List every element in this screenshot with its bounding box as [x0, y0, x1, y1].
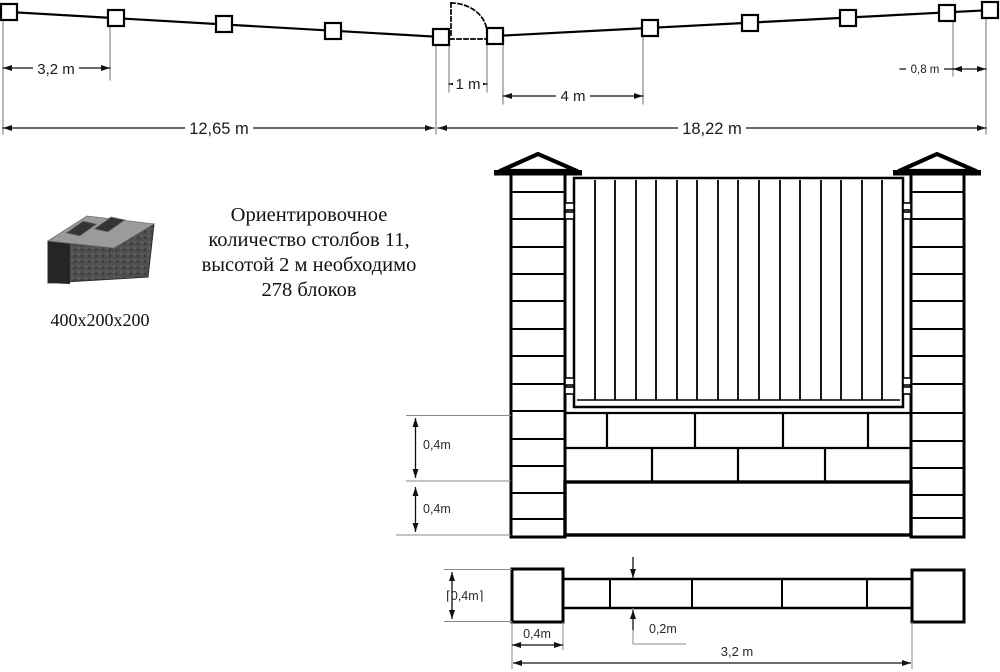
dim-last-spacing-label: 0,8 m — [911, 64, 940, 76]
label-backgrounds — [33, 60, 944, 137]
fence-post — [982, 2, 998, 18]
post-section-right — [912, 570, 964, 622]
fence-post — [840, 10, 856, 26]
pillar-right — [911, 172, 964, 537]
fence-construction-drawing: 3,2 m 12,65 m 1 m 4 m 18,22 m 0,8 m — [0, 0, 1000, 672]
fence-post — [325, 23, 341, 39]
dim-right-total-label: 18,22 m — [682, 120, 742, 138]
elevation-extension-lines — [396, 416, 511, 536]
fence-post — [108, 10, 124, 26]
pillar-cap-left — [494, 154, 582, 173]
fence-post — [742, 15, 758, 31]
fence-plan-section-view: ⌈0,4m⌉ 0,4m 0,2m 3,2 m — [444, 557, 964, 669]
fence-post — [642, 20, 658, 36]
dim-left-total-label: 12,65 m — [189, 120, 249, 138]
gate-swing-symbol — [450, 3, 488, 39]
note-line: Ориентировочное — [173, 203, 445, 228]
fence-post — [939, 5, 955, 21]
post-section-left — [512, 569, 563, 622]
dim-span-label: 3,2 m — [721, 644, 754, 659]
site-plan-view: 3,2 m 12,65 m 1 m 4 m 18,22 m 0,8 m — [1, 2, 998, 138]
fence-posts — [1, 2, 998, 45]
fence-post — [216, 16, 232, 32]
dim-masonry-height-label: 0,4m — [423, 438, 451, 452]
drawing-canvas: 3,2 m 12,65 m 1 m 4 m 18,22 m 0,8 m — [0, 0, 1000, 672]
pillar-left — [511, 172, 565, 537]
dim-post-depth-label: ⌈0,4m⌉ — [446, 589, 484, 603]
dim-after-gate-label: 4 m — [560, 88, 585, 105]
wall-strip — [563, 579, 912, 608]
fence-post — [1, 4, 17, 20]
pillar-cap-right — [893, 154, 981, 173]
block-size-label: 400x200x200 — [30, 310, 170, 331]
note-line: 278 блоков — [173, 278, 445, 303]
plan-dimension-lines — [3, 68, 986, 128]
dim-post-width-label: 0,4m — [523, 627, 551, 641]
dim-gate-opening-label: 1 m — [455, 76, 480, 93]
dim-wall-thickness-label: 0,2m — [649, 622, 677, 636]
gate-post-right — [487, 28, 503, 44]
dim-post-spacing-label: 3,2 m — [37, 61, 75, 78]
masonry-rows — [565, 413, 911, 482]
gate-post-left — [433, 29, 449, 45]
concrete-block-image — [48, 216, 154, 284]
note-text: Ориентировочное количество столбов 11, в… — [173, 203, 445, 303]
dim-foundation-height-label: 0,4m — [423, 502, 451, 516]
fence-elevation-view: 0,4m 0,4m — [396, 154, 981, 537]
note-line: количество столбов 11, — [173, 228, 445, 253]
foundation — [565, 482, 911, 535]
note-line: высотой 2 м необходимо — [173, 253, 445, 278]
